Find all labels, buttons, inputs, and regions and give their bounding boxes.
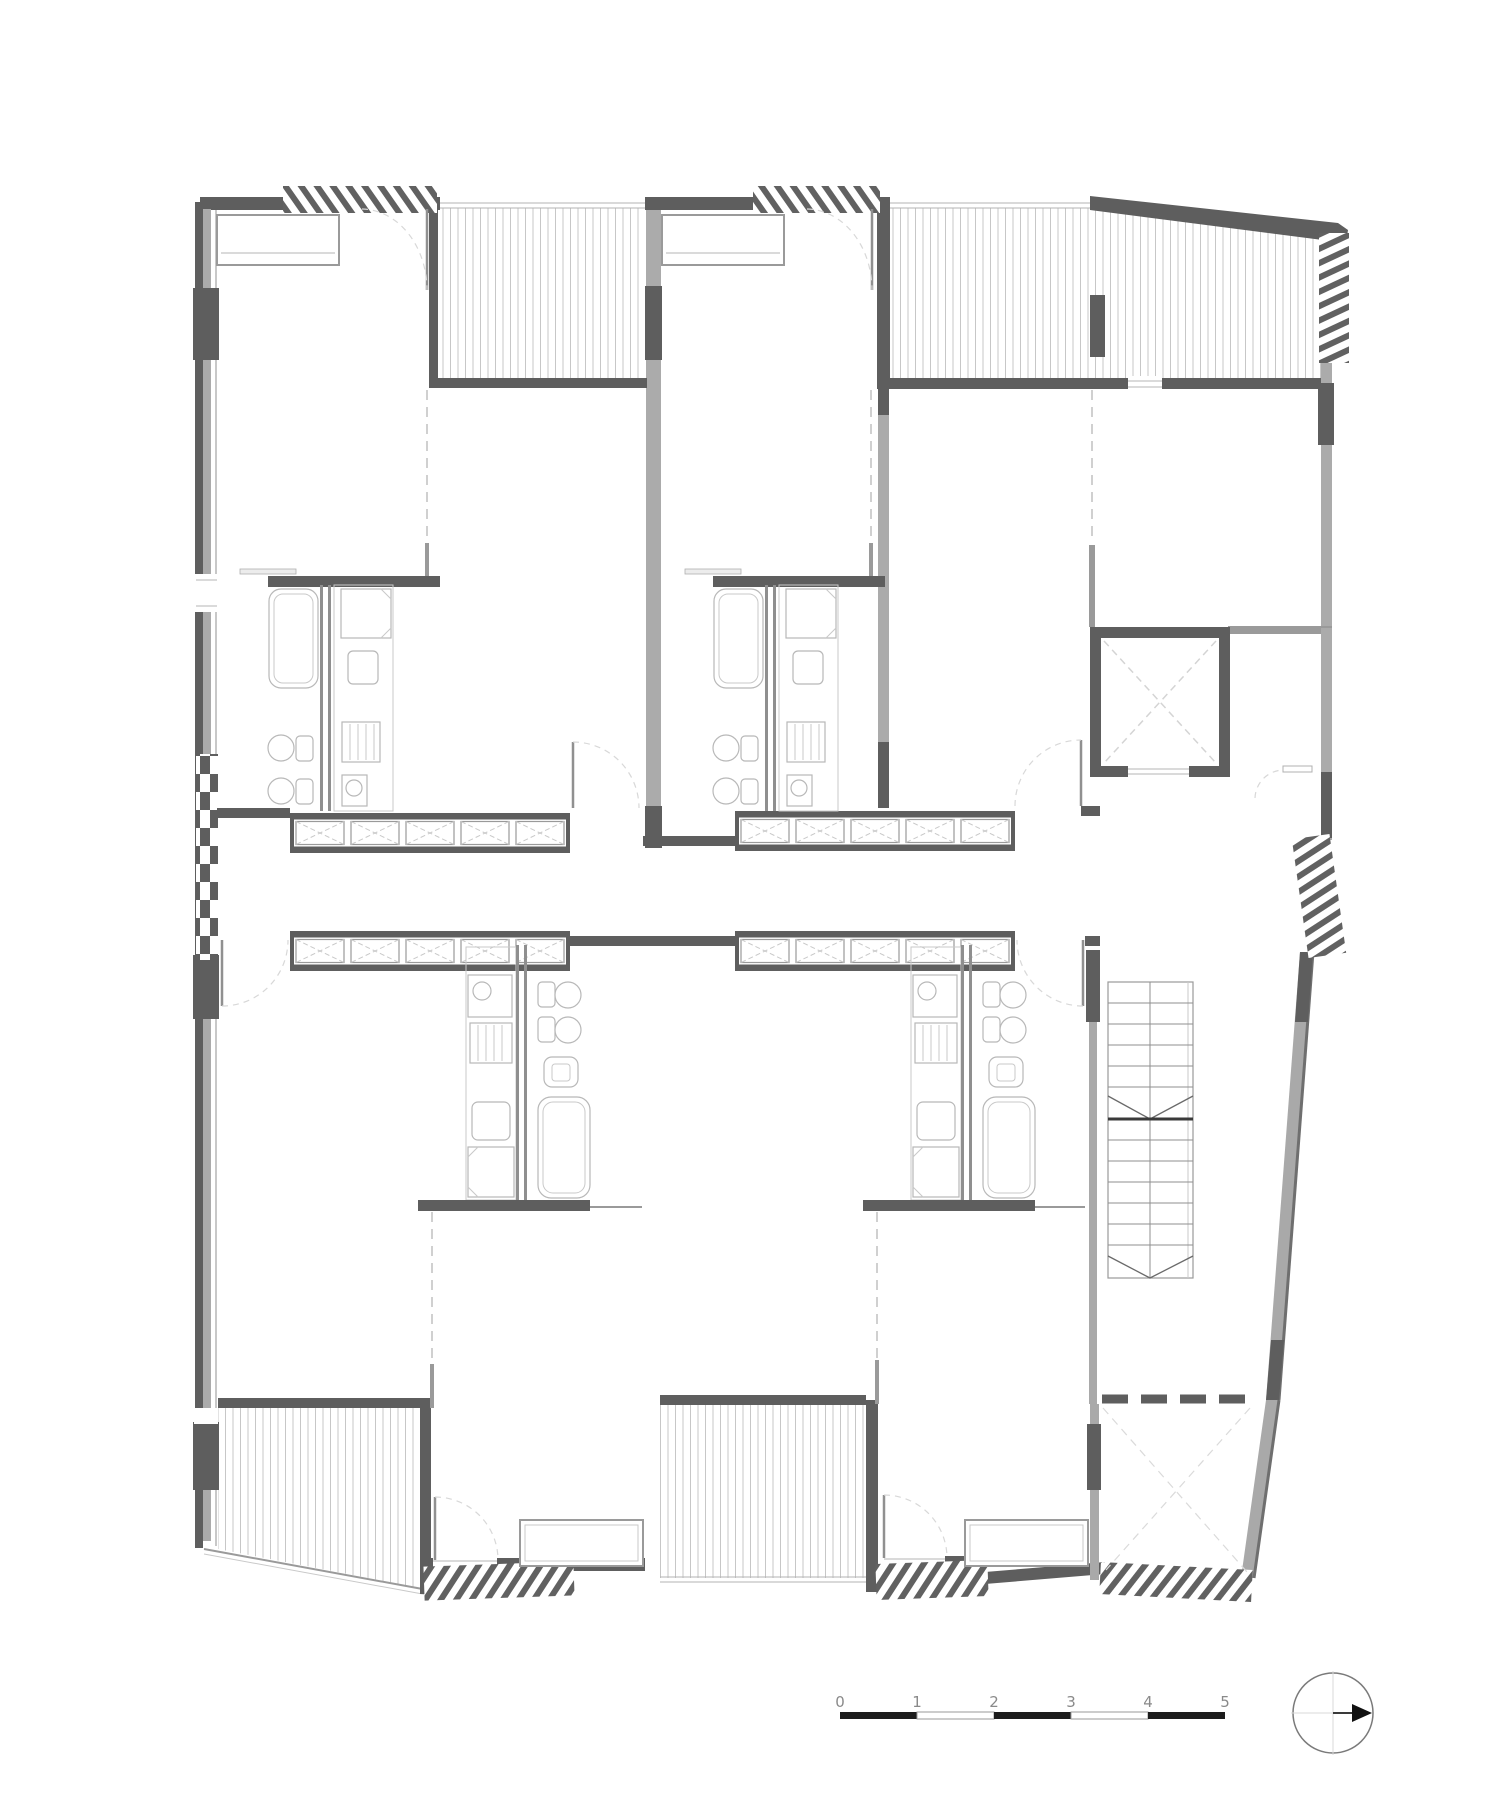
scale-label-5: 5 xyxy=(1220,1693,1230,1711)
louver-mid-right xyxy=(1292,834,1346,958)
bath-kitchen-unit1 xyxy=(240,569,440,811)
north-arrow-head xyxy=(1352,1704,1372,1722)
kitchen-bath-unit4 xyxy=(863,945,1035,1211)
closet-unit3 xyxy=(520,1520,643,1566)
elevator xyxy=(1089,390,1312,798)
stairs xyxy=(1086,950,1193,1404)
corridor-door-unit2 xyxy=(1015,740,1081,806)
front-door-unit2 xyxy=(807,209,872,290)
louver-bottom-right xyxy=(1099,1562,1252,1602)
floor-plan-drawing: 0 1 2 3 4 5 xyxy=(0,0,1512,1816)
louver-top-right-corner xyxy=(1319,233,1349,363)
scale-label-4: 4 xyxy=(1143,1693,1153,1711)
north-arrow xyxy=(1291,1671,1373,1755)
wall-deck4-top xyxy=(660,1395,866,1405)
deck-column xyxy=(1090,295,1105,357)
scale-bar: 0 1 2 3 4 5 xyxy=(835,1693,1230,1719)
corridor-door-unit3 xyxy=(222,940,288,1006)
closet-unit1 xyxy=(217,215,339,265)
window-array-unit4 xyxy=(735,931,1015,971)
terrace-south-east xyxy=(1087,1399,1258,1580)
louver-screens xyxy=(283,186,1349,1602)
closet-unit2 xyxy=(662,215,784,265)
scale-label-0: 0 xyxy=(835,1693,845,1711)
window-left-lower xyxy=(194,1408,218,1424)
closet-unit4 xyxy=(965,1520,1088,1566)
deck-unit-4 xyxy=(660,1404,866,1582)
corridor-door-unit4 xyxy=(1017,940,1083,1006)
party-wall-units-1-2 xyxy=(645,210,662,848)
entry-door-unit3 xyxy=(435,1497,498,1560)
elevator-x xyxy=(1104,641,1216,763)
corridor-door-unit1 xyxy=(573,742,639,808)
checker-louver-wall xyxy=(196,754,218,960)
wall-deck1-bottom xyxy=(437,378,647,388)
scale-label-3: 3 xyxy=(1066,1693,1076,1711)
unit-4 xyxy=(863,940,1088,1566)
scale-label-1: 1 xyxy=(912,1693,922,1711)
entry-door-unit4 xyxy=(884,1495,947,1558)
terrace-x xyxy=(1103,1408,1250,1572)
deck-unit-3 xyxy=(204,1408,428,1595)
wall-deck3-top xyxy=(218,1398,430,1408)
scale-label-2: 2 xyxy=(989,1693,999,1711)
building-shell xyxy=(193,196,1348,1594)
floor-plan-page: 0 1 2 3 4 5 xyxy=(0,0,1512,1816)
louver-bottom-left xyxy=(423,1561,574,1600)
window-array-unit3 xyxy=(290,931,570,971)
wall-right-slanted xyxy=(1241,952,1313,1578)
window-array-unit1 xyxy=(290,813,570,853)
wall-deck2-bottom xyxy=(890,378,1332,389)
front-door-unit1 xyxy=(362,209,427,290)
louver-top-middle xyxy=(753,186,880,213)
deck-unit-1 xyxy=(437,203,645,380)
bath-kitchen-unit2 xyxy=(685,569,885,811)
louver-top-left xyxy=(283,186,437,213)
window-array-unit2 xyxy=(735,811,1015,851)
lobby-door xyxy=(1255,766,1312,798)
kitchen-bath-unit3 xyxy=(418,945,590,1211)
